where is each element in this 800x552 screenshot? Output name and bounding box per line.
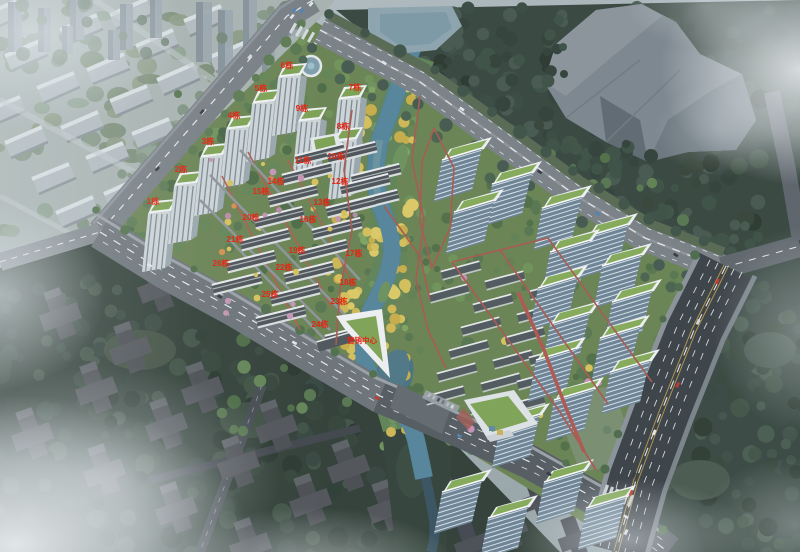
svg-text:8栋: 8栋	[337, 121, 351, 131]
svg-text:18栋: 18栋	[340, 277, 357, 287]
svg-text:17栋: 17栋	[346, 248, 363, 258]
svg-text:10栋: 10栋	[328, 151, 345, 161]
svg-text:23栋: 23栋	[331, 296, 348, 306]
svg-text:12栋: 12栋	[332, 176, 349, 186]
svg-text:营销中心: 营销中心	[347, 335, 377, 345]
svg-text:7栋: 7栋	[349, 82, 363, 92]
